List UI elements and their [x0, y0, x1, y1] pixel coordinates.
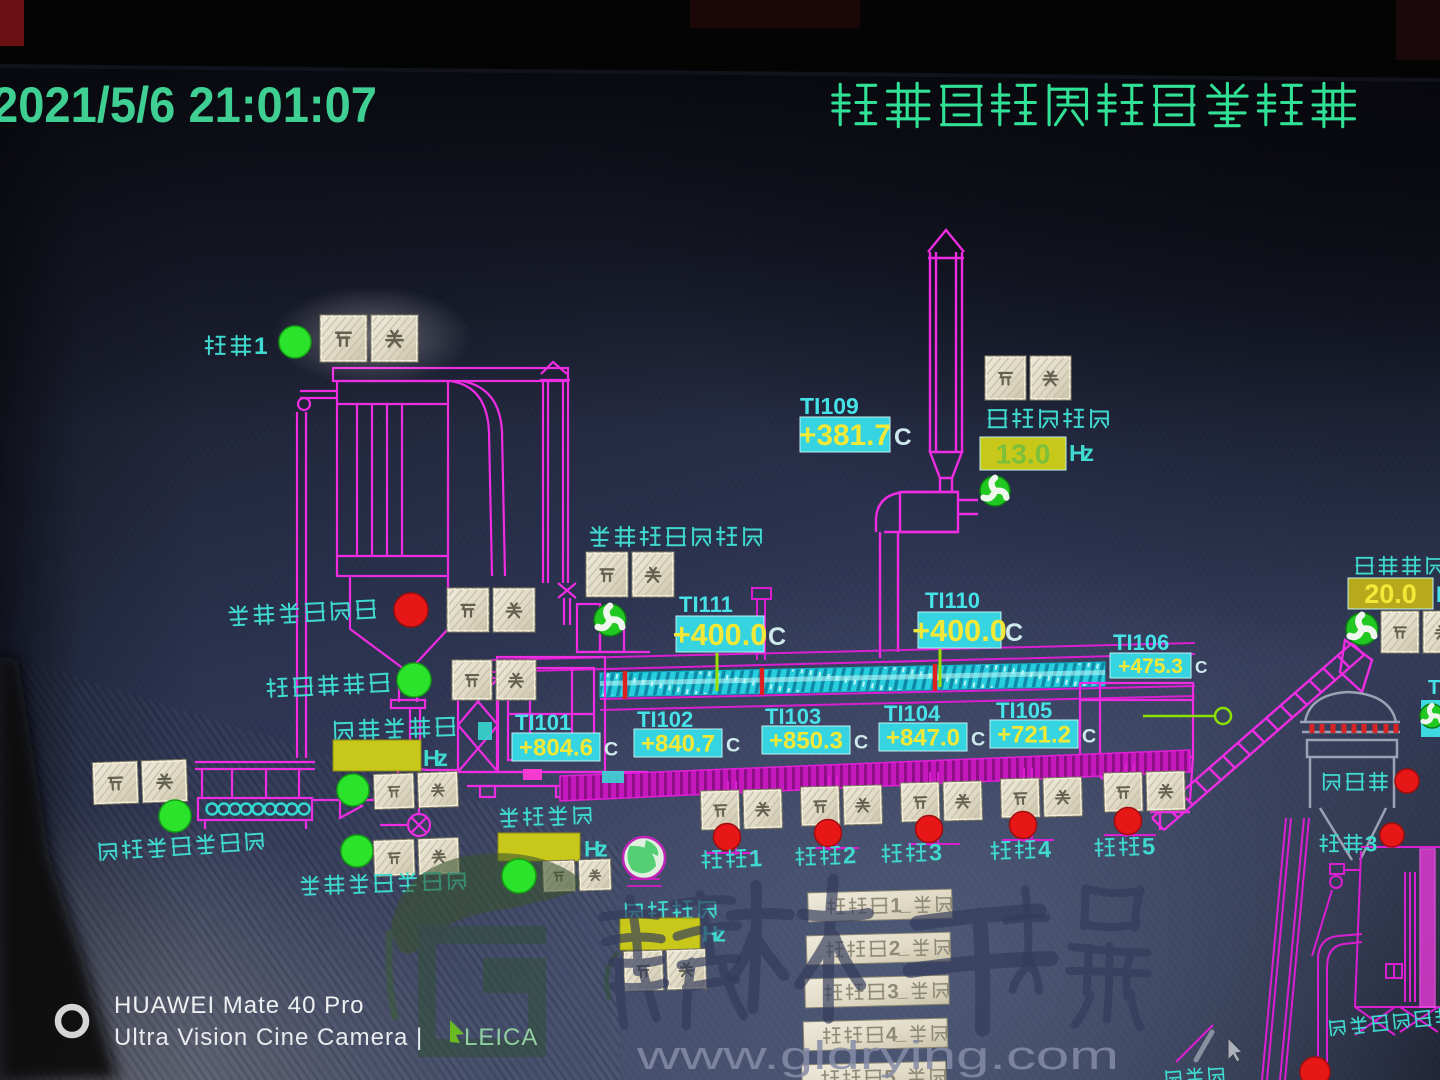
svg-text:+840.7: +840.7 — [641, 731, 715, 758]
svg-text:3: 3 — [1365, 831, 1378, 856]
svg-text:+847.0: +847.0 — [886, 725, 960, 752]
svg-text:+721.2: +721.2 — [997, 722, 1071, 749]
svg-text:+400.0: +400.0 — [673, 618, 767, 652]
svg-text:TI111: TI111 — [679, 592, 733, 617]
svg-text:TI101: TI101 — [515, 710, 571, 735]
svg-text:_: _ — [896, 980, 909, 1001]
svg-text:_: _ — [897, 937, 910, 958]
svg-text:TI104: TI104 — [884, 701, 941, 726]
svg-text:z: z — [597, 836, 608, 861]
svg-text:4: 4 — [1038, 836, 1052, 862]
svg-text:TI110: TI110 — [925, 588, 980, 613]
svg-text:_: _ — [899, 894, 912, 915]
svg-text:H: H — [1436, 582, 1440, 607]
svg-text:3: 3 — [929, 839, 943, 865]
svg-text:C: C — [1195, 657, 1207, 677]
svg-text:5: 5 — [1142, 833, 1156, 859]
svg-text:C: C — [768, 623, 786, 651]
svg-text:z: z — [1082, 440, 1094, 466]
svg-text:C: C — [854, 732, 868, 754]
svg-text:Ultra Vision Cine Camera |: Ultra Vision Cine Camera | — [114, 1024, 423, 1051]
svg-text:LEICA: LEICA — [464, 1024, 538, 1051]
svg-text:TI103: TI103 — [765, 704, 821, 729]
svg-text:2: 2 — [843, 842, 857, 868]
svg-text:T: T — [1428, 677, 1440, 699]
svg-text:13.0: 13.0 — [996, 439, 1051, 470]
svg-text:+400.0: +400.0 — [912, 614, 1006, 648]
svg-text:1: 1 — [254, 333, 268, 360]
svg-text:C: C — [1005, 619, 1023, 647]
svg-text:C: C — [1082, 726, 1096, 748]
svg-text:20.0: 20.0 — [1364, 579, 1417, 609]
svg-text:z: z — [436, 745, 448, 771]
svg-text:+850.3: +850.3 — [769, 728, 843, 755]
svg-text:C: C — [604, 739, 618, 761]
svg-text:C: C — [726, 735, 740, 757]
svg-text:C: C — [971, 729, 985, 751]
svg-text:TI102: TI102 — [637, 707, 693, 732]
svg-text:TI105: TI105 — [996, 698, 1052, 723]
svg-text:1: 1 — [749, 845, 763, 871]
svg-text:HUAWEI Mate 40 Pro: HUAWEI Mate 40 Pro — [114, 992, 365, 1019]
svg-text:TI106: TI106 — [1113, 630, 1169, 655]
svg-text:2021/5/6 21:01:07: 2021/5/6 21:01:07 — [0, 77, 377, 133]
svg-text:www.gldrying.com: www.gldrying.com — [636, 1034, 1119, 1078]
svg-text:+804.6: +804.6 — [519, 735, 593, 762]
svg-text:TI109: TI109 — [800, 393, 859, 419]
svg-text:+475.3: +475.3 — [1118, 655, 1183, 678]
svg-text:C: C — [894, 424, 912, 451]
svg-text:+381.7: +381.7 — [799, 419, 891, 452]
